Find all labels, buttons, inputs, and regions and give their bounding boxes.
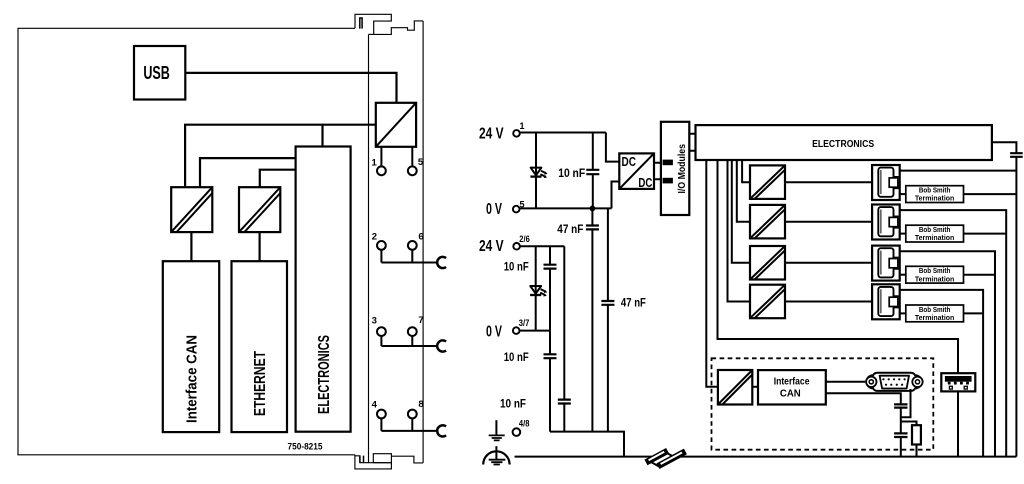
svg-text:ELECTRONICS: ELECTRONICS — [316, 335, 333, 414]
svg-text:1: 1 — [520, 121, 525, 131]
svg-text:7: 7 — [418, 315, 423, 326]
svg-text:4: 4 — [372, 400, 378, 411]
svg-text:24 V: 24 V — [479, 125, 504, 142]
svg-text:10 nF: 10 nF — [558, 166, 585, 180]
svg-text:10 nF: 10 nF — [504, 259, 529, 273]
svg-text:Termination: Termination — [915, 194, 955, 203]
svg-text:47 nF: 47 nF — [557, 222, 583, 236]
svg-text:ETHERNET: ETHERNET — [252, 351, 269, 416]
svg-text:3/7: 3/7 — [519, 318, 530, 328]
svg-text:750-8215: 750-8215 — [288, 442, 323, 452]
svg-text:CAN: CAN — [780, 388, 801, 399]
svg-text:5: 5 — [418, 157, 424, 168]
svg-text:USB: USB — [143, 63, 170, 83]
svg-text:8: 8 — [418, 399, 423, 410]
svg-text:Interface CAN: Interface CAN — [183, 335, 200, 423]
svg-text:DC: DC — [638, 175, 652, 190]
svg-text:1: 1 — [372, 157, 378, 168]
svg-text:Termination: Termination — [915, 233, 955, 242]
svg-text:Termination: Termination — [915, 274, 955, 283]
svg-text:10 nF: 10 nF — [504, 350, 529, 364]
svg-text:ELECTRONICS: ELECTRONICS — [812, 138, 874, 150]
svg-text:2/6: 2/6 — [519, 234, 530, 244]
svg-text:2: 2 — [372, 232, 377, 243]
svg-text:47 nF: 47 nF — [621, 296, 646, 310]
svg-text:3: 3 — [372, 315, 377, 326]
svg-text:10 nF: 10 nF — [500, 396, 526, 410]
svg-text:6: 6 — [418, 232, 423, 243]
svg-text:24 V: 24 V — [479, 238, 504, 255]
svg-text:I/O Modules: I/O Modules — [676, 144, 688, 194]
svg-text:Termination: Termination — [915, 313, 955, 322]
svg-text:Interface: Interface — [774, 377, 810, 388]
svg-text:0 V: 0 V — [486, 201, 502, 218]
svg-text:4/8: 4/8 — [519, 419, 530, 429]
svg-text:0 V: 0 V — [486, 324, 502, 341]
svg-text:DC: DC — [622, 154, 637, 169]
